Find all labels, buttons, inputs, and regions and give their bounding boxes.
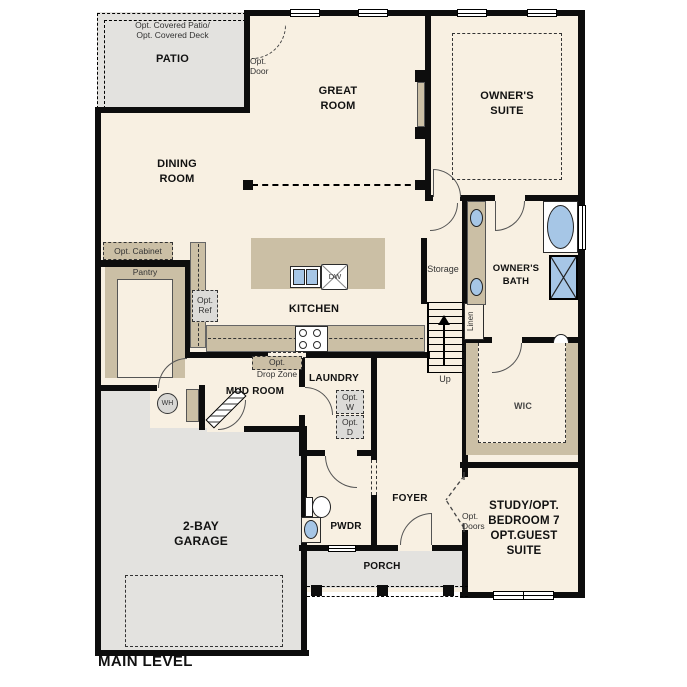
owners-bath-label-2: BATH bbox=[485, 275, 547, 288]
study-label-2: BEDROOM 7 bbox=[477, 515, 571, 528]
wall-pantry-top bbox=[95, 260, 186, 267]
wall-patio-bottom bbox=[95, 107, 250, 113]
wic-label: WIC bbox=[500, 400, 546, 413]
pwdr-label: PWDR bbox=[323, 520, 369, 533]
main-level-title: MAIN LEVEL bbox=[98, 655, 228, 668]
divider-post-left bbox=[243, 180, 253, 190]
wall-hall-left bbox=[371, 358, 377, 545]
great-room-label-1: GREAT bbox=[298, 85, 378, 98]
wall-right bbox=[578, 10, 585, 598]
pwdr-toilet-bowl bbox=[312, 496, 331, 518]
study-label-4: SUITE bbox=[477, 545, 571, 558]
wall-study-left-b bbox=[462, 530, 468, 592]
wall-wic-bottom bbox=[460, 462, 585, 468]
study-label-1: STUDY/OPT. bbox=[477, 500, 571, 513]
window-study bbox=[493, 591, 554, 600]
dining-room-label-1: DINING bbox=[137, 158, 217, 171]
window-greatroom-2 bbox=[358, 9, 388, 17]
foyer-label: FOYER bbox=[385, 492, 435, 505]
owners-suite-label-1: OWNER'S bbox=[467, 90, 547, 103]
kitchen-sink-right bbox=[306, 269, 318, 285]
wall-left bbox=[95, 107, 101, 656]
burner-1 bbox=[299, 329, 307, 337]
porch-post-3 bbox=[443, 585, 454, 596]
dishwasher-label: DW bbox=[326, 272, 344, 282]
porch-post-2 bbox=[377, 585, 388, 596]
patio-opt-label-2: Opt. Covered Deck bbox=[110, 31, 235, 41]
kitchen-label: KITCHEN bbox=[274, 303, 354, 316]
wall-mud-bottom bbox=[244, 426, 307, 432]
opt-door-label-2: Door bbox=[250, 67, 276, 77]
window-suite-1 bbox=[457, 9, 487, 17]
window-suite-2 bbox=[527, 9, 557, 17]
burner-4 bbox=[313, 341, 321, 349]
opening-hall-pwdr bbox=[371, 460, 377, 495]
laundry-label: LAUNDRY bbox=[305, 372, 363, 385]
stairs-arrow-head bbox=[438, 315, 450, 325]
up-label: Up bbox=[434, 375, 456, 385]
kitchen-sink-left bbox=[293, 269, 305, 285]
mud-bench bbox=[186, 389, 199, 422]
opt-d-2: D bbox=[336, 428, 364, 438]
stairs-arrow-line bbox=[443, 324, 445, 366]
stairs bbox=[427, 302, 464, 373]
storage-label: Storage bbox=[420, 265, 466, 275]
wic-shelf-right bbox=[566, 343, 578, 455]
room-divider-dashed bbox=[252, 184, 421, 186]
owners-suite-label-2: SUITE bbox=[467, 105, 547, 118]
pantry-inner bbox=[117, 279, 173, 378]
pwdr-sink bbox=[304, 520, 318, 539]
wall-nook bbox=[199, 385, 205, 430]
drop-zone-label-1: Opt. bbox=[252, 358, 302, 368]
porch-post-1 bbox=[311, 585, 322, 596]
burner-3 bbox=[299, 341, 307, 349]
media-niche-panel bbox=[417, 82, 425, 127]
garage-label-2: GARAGE bbox=[161, 535, 241, 548]
owners-bath-label-1: OWNER'S bbox=[485, 262, 547, 275]
porch-label: PORCH bbox=[357, 560, 407, 573]
water-heater-label: WH bbox=[157, 399, 178, 409]
dining-room-label-2: ROOM bbox=[137, 173, 217, 186]
garage-door-dashed bbox=[125, 575, 283, 647]
burner-2 bbox=[313, 329, 321, 337]
opt-ref-label-2: Ref bbox=[192, 306, 218, 316]
shower bbox=[549, 255, 578, 300]
wall-garage-top bbox=[101, 385, 157, 391]
window-greatroom-1 bbox=[290, 9, 320, 17]
linen-label: Linen bbox=[466, 305, 482, 338]
wic-shelf-bottom bbox=[466, 443, 578, 455]
pantry-label: Pantry bbox=[105, 268, 185, 278]
mud-room-label: MUD ROOM bbox=[215, 385, 295, 398]
great-room-label-2: ROOM bbox=[298, 100, 378, 113]
window-bath bbox=[578, 205, 586, 250]
vanity-sink-1 bbox=[470, 209, 483, 227]
opt-w-2: W bbox=[336, 403, 364, 413]
garage-label-1: 2-BAY bbox=[161, 520, 241, 533]
wall-suite-left bbox=[425, 14, 431, 201]
window-porch bbox=[328, 545, 356, 552]
floor-plan: DW Opt. Cabinet Pantry Opt. Ref Opt. Dro… bbox=[0, 0, 687, 687]
wic-shelf-left bbox=[466, 343, 478, 455]
wall-counter bbox=[183, 352, 430, 358]
opening-front-door bbox=[398, 545, 432, 551]
tub bbox=[547, 205, 574, 249]
media-niche-top bbox=[415, 70, 431, 82]
opt-cabinet-label: Opt. Cabinet bbox=[103, 247, 173, 257]
vanity-sink-2 bbox=[470, 278, 483, 296]
drop-zone-label-2: Drop Zone bbox=[240, 370, 314, 380]
porch-edge-dash-2 bbox=[307, 596, 468, 597]
wall-front bbox=[299, 545, 468, 551]
media-niche-bottom bbox=[415, 127, 431, 139]
divider-post-right bbox=[415, 180, 425, 190]
patio-label: PATIO bbox=[135, 53, 210, 66]
study-label-3: OPT.GUEST bbox=[477, 530, 571, 543]
